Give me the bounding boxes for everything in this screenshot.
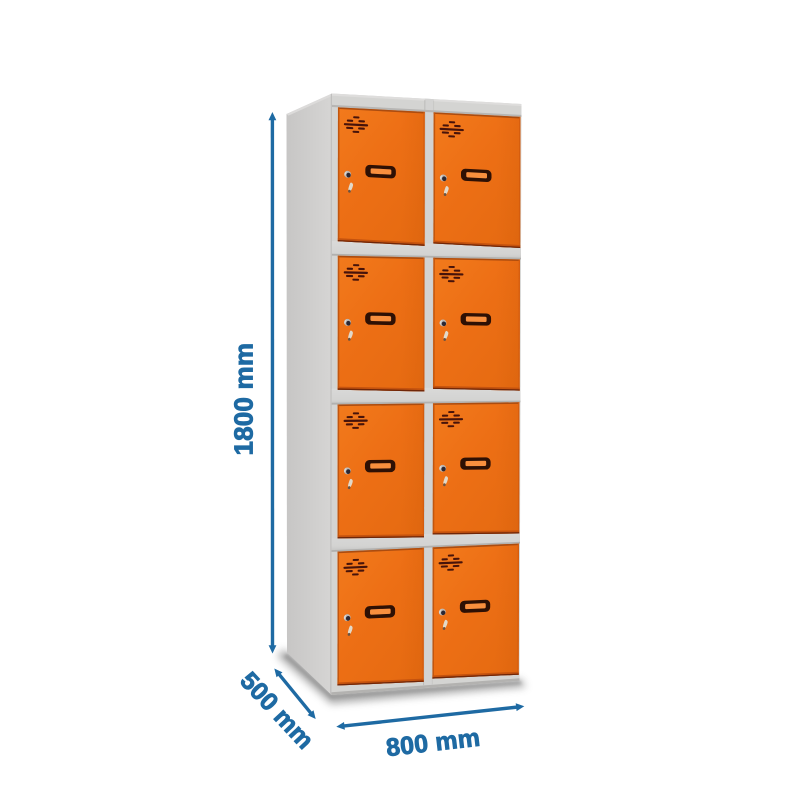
svg-text:1800 mm: 1800 mm: [228, 343, 258, 456]
svg-text:800 mm: 800 mm: [385, 724, 482, 762]
